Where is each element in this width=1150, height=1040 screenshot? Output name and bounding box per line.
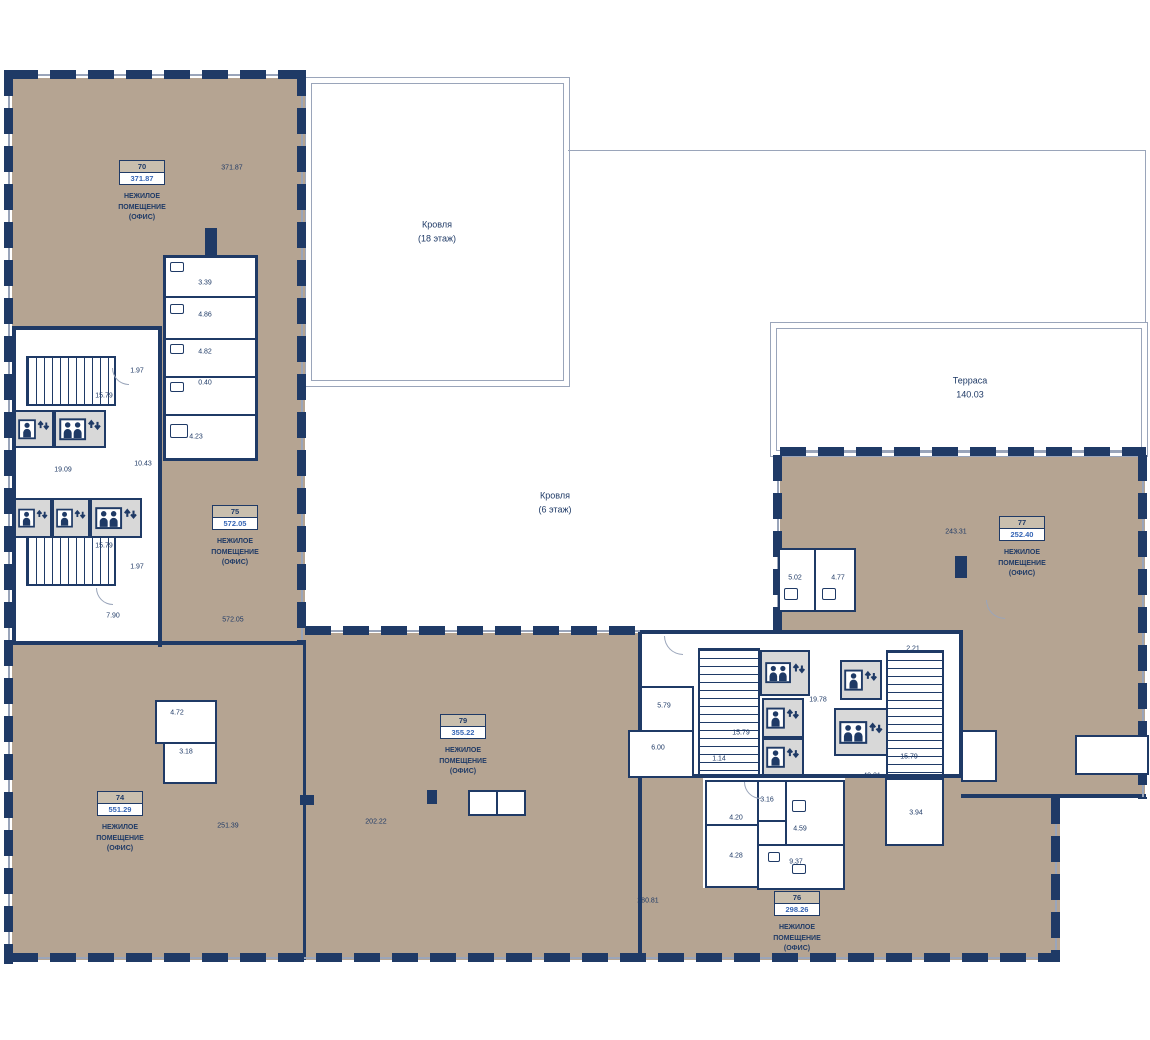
toilet-fixture	[170, 344, 184, 354]
toilet-fixture	[170, 382, 184, 392]
wall	[638, 630, 642, 962]
roof-boundary-line-right	[1145, 150, 1146, 322]
dim-label: 9.37	[789, 859, 803, 866]
dim-label: 1.14	[712, 756, 726, 763]
wc-room	[785, 780, 845, 846]
room-number: 70	[120, 161, 164, 173]
room-number: 74	[98, 792, 142, 804]
roof-boundary-line-top	[568, 150, 1146, 151]
dim-label: 0.40	[198, 380, 212, 387]
shaft	[468, 790, 526, 816]
wall	[640, 630, 963, 634]
dim-label: 19.78	[809, 697, 827, 704]
room-tag-77[interactable]: 77 252.40	[999, 516, 1045, 541]
dim-label: 4.77	[831, 575, 845, 582]
window-wall-room79-north	[305, 626, 640, 635]
shower-fixture	[170, 424, 188, 438]
window-wall-west-wing-east	[297, 70, 306, 645]
zone-label-terrace: Терраса 140.03	[953, 374, 988, 403]
dim-label: 1.97	[130, 564, 144, 571]
dim-label: 4.23	[189, 434, 203, 441]
dim-label: 4.72	[170, 710, 184, 717]
elevator-icon	[762, 738, 804, 776]
service-room	[961, 730, 997, 782]
dim-label: 572.05	[222, 617, 243, 624]
wall	[166, 296, 255, 298]
window-wall-west	[4, 70, 13, 964]
wall	[166, 414, 255, 416]
elevator-icon	[54, 410, 106, 448]
zone-label-roof-18: Кровля (18 этаж)	[418, 218, 456, 247]
toilet-fixture	[792, 864, 806, 874]
dim-label: 4.20	[729, 815, 743, 822]
room-type-label: НЕЖИЛОЕ ПОМЕЩЕНИЕ (ОФИС)	[421, 746, 505, 778]
elevator-icon	[840, 660, 882, 700]
dim-label: 19.09	[54, 467, 72, 474]
toilet-fixture	[170, 304, 184, 314]
room-area: 551.29	[98, 804, 142, 815]
elevator-icon	[762, 698, 804, 738]
dim-label: 5.79	[657, 703, 671, 710]
wall	[166, 376, 255, 378]
dim-label: 3.39	[198, 280, 212, 287]
sink-fixture	[768, 852, 780, 862]
window-wall-room77-north	[780, 447, 1146, 456]
dim-label: 15.79	[95, 393, 113, 400]
room-type-label: НЕЖИЛОЕ ПОМЕЩЕНИЕ (ОФИС)	[100, 192, 184, 224]
room-area: 355.22	[441, 727, 485, 738]
wall	[12, 641, 305, 645]
dim-label: 15.79	[900, 754, 918, 761]
room-tag-70[interactable]: 70 371.87	[119, 160, 165, 185]
column	[427, 790, 437, 804]
dim-label: 3.94	[909, 810, 923, 817]
room-type-label: НЕЖИЛОЕ ПОМЕЩЕНИЕ (ОФИС)	[78, 823, 162, 855]
column	[205, 228, 217, 258]
wall	[166, 338, 255, 340]
room-type-label: НЕЖИЛОЕ ПОМЕЩЕНИЕ (ОФИС)	[980, 548, 1064, 580]
room-tag-79[interactable]: 79 355.22	[440, 714, 486, 739]
service-room	[628, 730, 694, 778]
room-area: 572.05	[213, 518, 257, 529]
stairs-core-left	[698, 648, 760, 776]
room-number: 79	[441, 715, 485, 727]
room-type-label: НЕЖИЛОЕ ПОМЕЩЕНИЕ (ОФИС)	[755, 923, 839, 955]
dim-label: 4.28	[729, 853, 743, 860]
elevator-icon	[52, 498, 90, 538]
floor-plan: Кровля (18 этаж) Кровля (6 этаж) Терраса…	[0, 0, 1150, 1040]
elevator-icon	[760, 650, 810, 696]
service-room	[155, 700, 217, 744]
column	[300, 795, 314, 805]
toilet-fixture	[170, 262, 184, 272]
window-wall-room76-east	[1051, 798, 1060, 956]
dim-label: 40.21	[863, 773, 881, 780]
dim-label: 15.79	[732, 730, 750, 737]
dim-label: 15.79	[95, 543, 113, 550]
room-type-label: НЕЖИЛОЕ ПОМЕЩЕНИЕ (ОФИС)	[193, 537, 277, 569]
dim-label: 3.18	[179, 749, 193, 756]
room-tag-74[interactable]: 74 551.29	[97, 791, 143, 816]
room-tag-76[interactable]: 76 298.26	[774, 891, 820, 916]
dim-label: 243.31	[945, 529, 966, 536]
window-wall-south	[12, 953, 1060, 962]
dim-label: 4.82	[198, 349, 212, 356]
elevator-icon	[90, 498, 142, 538]
dim-label: 251.39	[217, 823, 238, 830]
room-number: 77	[1000, 517, 1044, 529]
wall	[158, 326, 162, 647]
window-wall-north	[12, 70, 305, 79]
column	[955, 556, 967, 578]
room-number: 75	[213, 506, 257, 518]
room-area: 252.40	[1000, 529, 1044, 540]
wall	[12, 326, 162, 330]
dim-label: 371.87	[221, 165, 242, 172]
dim-label: 6.00	[651, 745, 665, 752]
elevator-icon	[14, 498, 52, 538]
toilet-fixture	[784, 588, 798, 600]
dim-label: 1.97	[130, 368, 144, 375]
service-room	[1075, 735, 1149, 775]
dim-label: 4.86	[198, 312, 212, 319]
toilet-fixture	[822, 588, 836, 600]
room-number: 76	[775, 892, 819, 904]
room-area: 371.87	[120, 173, 164, 184]
dim-label: 7.90	[106, 613, 120, 620]
elevator-icon	[834, 708, 888, 756]
toilet-fixture	[792, 800, 806, 812]
dim-label: 3.16	[760, 797, 774, 804]
floor-area-room-74	[12, 645, 305, 960]
elevator-icon	[14, 410, 54, 448]
zone-label-roof-6: Кровля (6 этаж)	[539, 489, 572, 518]
room-tag-75[interactable]: 75 572.05	[212, 505, 258, 530]
dim-label: 5.02	[788, 575, 802, 582]
dim-label: 202.22	[365, 819, 386, 826]
room-area: 298.26	[775, 904, 819, 915]
dim-label: 4.59	[793, 826, 807, 833]
dim-label: 2.21	[906, 646, 920, 653]
dim-label: 10.43	[134, 461, 152, 468]
dim-label: 280.81	[637, 898, 658, 905]
